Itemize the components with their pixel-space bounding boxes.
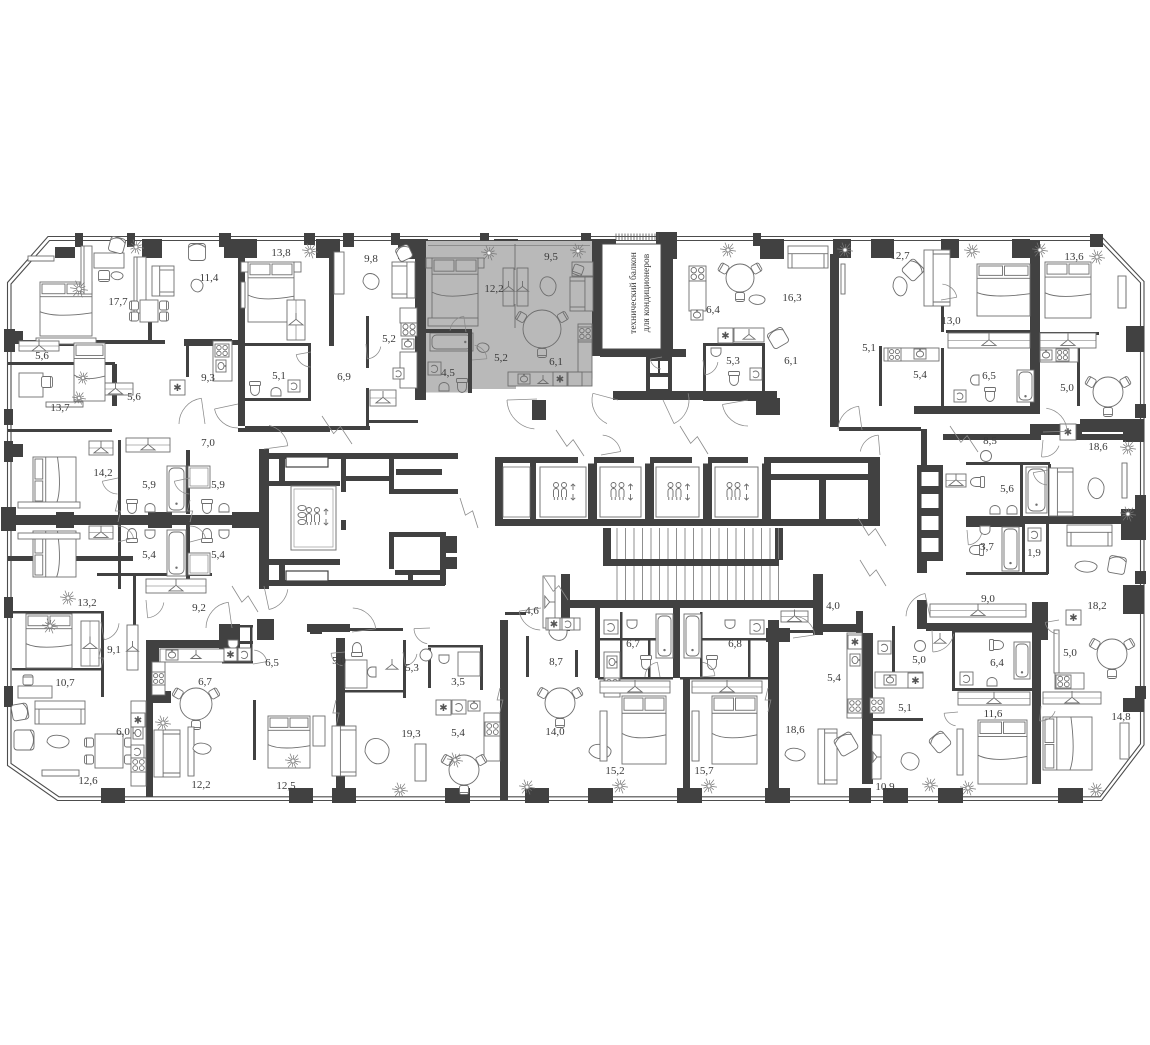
svg-text:9,1: 9,1 bbox=[107, 644, 121, 656]
svg-text:✱: ✱ bbox=[134, 716, 142, 727]
svg-text:9,8: 9,8 bbox=[364, 253, 378, 265]
svg-text:13,7: 13,7 bbox=[50, 402, 70, 414]
svg-text:5,1: 5,1 bbox=[272, 370, 286, 382]
svg-text:технический балкон: технический балкон bbox=[628, 252, 639, 334]
svg-text:6,8: 6,8 bbox=[728, 638, 742, 650]
svg-text:✱: ✱ bbox=[1064, 428, 1072, 439]
svg-text:19,3: 19,3 bbox=[401, 728, 421, 740]
svg-text:6,4: 6,4 bbox=[990, 657, 1004, 669]
svg-text:13,6: 13,6 bbox=[1064, 251, 1084, 263]
svg-text:5,6: 5,6 bbox=[35, 350, 49, 362]
svg-text:5,0: 5,0 bbox=[912, 654, 926, 666]
svg-text:6,1: 6,1 bbox=[784, 355, 798, 367]
svg-text:✱: ✱ bbox=[911, 676, 919, 687]
svg-text:12,5: 12,5 bbox=[276, 780, 296, 792]
svg-text:5,0: 5,0 bbox=[332, 655, 346, 667]
svg-text:18,6: 18,6 bbox=[785, 724, 805, 736]
svg-text:6,9: 6,9 bbox=[337, 371, 351, 383]
svg-text:5,2: 5,2 bbox=[382, 333, 396, 345]
svg-text:12,2: 12,2 bbox=[191, 779, 210, 791]
svg-text:16,3: 16,3 bbox=[782, 292, 802, 304]
svg-text:8,5: 8,5 bbox=[983, 435, 997, 447]
svg-text:17,7: 17,7 bbox=[108, 296, 128, 308]
svg-text:для кондиционеров: для кондиционеров bbox=[642, 253, 652, 332]
svg-text:18,6: 18,6 bbox=[1088, 441, 1108, 453]
svg-text:4,6: 4,6 bbox=[525, 605, 539, 617]
svg-text:18,2: 18,2 bbox=[1087, 600, 1106, 612]
svg-text:5,3: 5,3 bbox=[405, 662, 419, 674]
svg-text:4,0: 4,0 bbox=[826, 600, 840, 612]
svg-text:5,6: 5,6 bbox=[1000, 483, 1014, 495]
svg-text:9,5: 9,5 bbox=[544, 251, 558, 263]
svg-text:7,0: 7,0 bbox=[201, 437, 215, 449]
svg-text:5,4: 5,4 bbox=[451, 727, 465, 739]
svg-text:5,4: 5,4 bbox=[211, 549, 225, 561]
svg-text:5,1: 5,1 bbox=[898, 702, 912, 714]
svg-text:15,2: 15,2 bbox=[605, 765, 624, 777]
svg-text:14,0: 14,0 bbox=[545, 726, 565, 738]
svg-text:✱: ✱ bbox=[1069, 613, 1077, 624]
svg-text:6,5: 6,5 bbox=[265, 657, 279, 669]
svg-text:10,7: 10,7 bbox=[55, 677, 75, 689]
svg-text:6,7: 6,7 bbox=[626, 638, 640, 650]
svg-text:9,3: 9,3 bbox=[201, 372, 215, 384]
svg-text:5,4: 5,4 bbox=[142, 549, 156, 561]
svg-text:5,9: 5,9 bbox=[142, 479, 156, 491]
svg-text:✱: ✱ bbox=[226, 650, 234, 661]
svg-text:11,6: 11,6 bbox=[984, 708, 1003, 720]
svg-text:9,0: 9,0 bbox=[981, 593, 995, 605]
svg-text:5,4: 5,4 bbox=[827, 672, 841, 684]
svg-text:5,0: 5,0 bbox=[1063, 647, 1077, 659]
svg-text:5,9: 5,9 bbox=[211, 479, 225, 491]
svg-text:6,0: 6,0 bbox=[116, 726, 130, 738]
svg-text:5,1: 5,1 bbox=[862, 342, 876, 354]
svg-text:✱: ✱ bbox=[721, 331, 729, 342]
svg-text:13,2: 13,2 bbox=[77, 597, 96, 609]
svg-text:5,4: 5,4 bbox=[913, 369, 927, 381]
svg-text:10,9: 10,9 bbox=[875, 781, 895, 793]
svg-text:5,3: 5,3 bbox=[726, 355, 740, 367]
svg-text:12,7: 12,7 bbox=[890, 250, 910, 262]
svg-text:14,8: 14,8 bbox=[1111, 711, 1131, 723]
svg-text:6,7: 6,7 bbox=[198, 676, 212, 688]
svg-text:5,6: 5,6 bbox=[127, 391, 141, 403]
svg-text:13,8: 13,8 bbox=[271, 247, 291, 259]
svg-text:12,6: 12,6 bbox=[78, 775, 98, 787]
svg-text:14,2: 14,2 bbox=[93, 467, 112, 479]
svg-text:11,4: 11,4 bbox=[200, 272, 219, 284]
svg-text:9,2: 9,2 bbox=[192, 602, 206, 614]
svg-text:3,5: 3,5 bbox=[451, 676, 465, 688]
svg-text:15,7: 15,7 bbox=[694, 765, 714, 777]
svg-text:8,7: 8,7 bbox=[549, 656, 563, 668]
svg-text:6,5: 6,5 bbox=[982, 370, 996, 382]
svg-text:✱: ✱ bbox=[439, 703, 447, 714]
svg-text:4,5: 4,5 bbox=[441, 367, 455, 379]
svg-text:5,2: 5,2 bbox=[494, 352, 508, 364]
svg-text:12,2: 12,2 bbox=[484, 283, 503, 295]
svg-text:✱: ✱ bbox=[556, 375, 564, 386]
svg-text:✱: ✱ bbox=[173, 383, 181, 394]
svg-text:13,0: 13,0 bbox=[941, 315, 961, 327]
svg-text:3,7: 3,7 bbox=[980, 541, 994, 553]
svg-text:6,1: 6,1 bbox=[549, 356, 563, 368]
svg-text:✱: ✱ bbox=[851, 638, 859, 649]
svg-text:✱: ✱ bbox=[550, 620, 558, 631]
svg-text:6,4: 6,4 bbox=[706, 304, 720, 316]
svg-text:1,9: 1,9 bbox=[1027, 547, 1041, 559]
svg-text:5,0: 5,0 bbox=[1060, 382, 1074, 394]
